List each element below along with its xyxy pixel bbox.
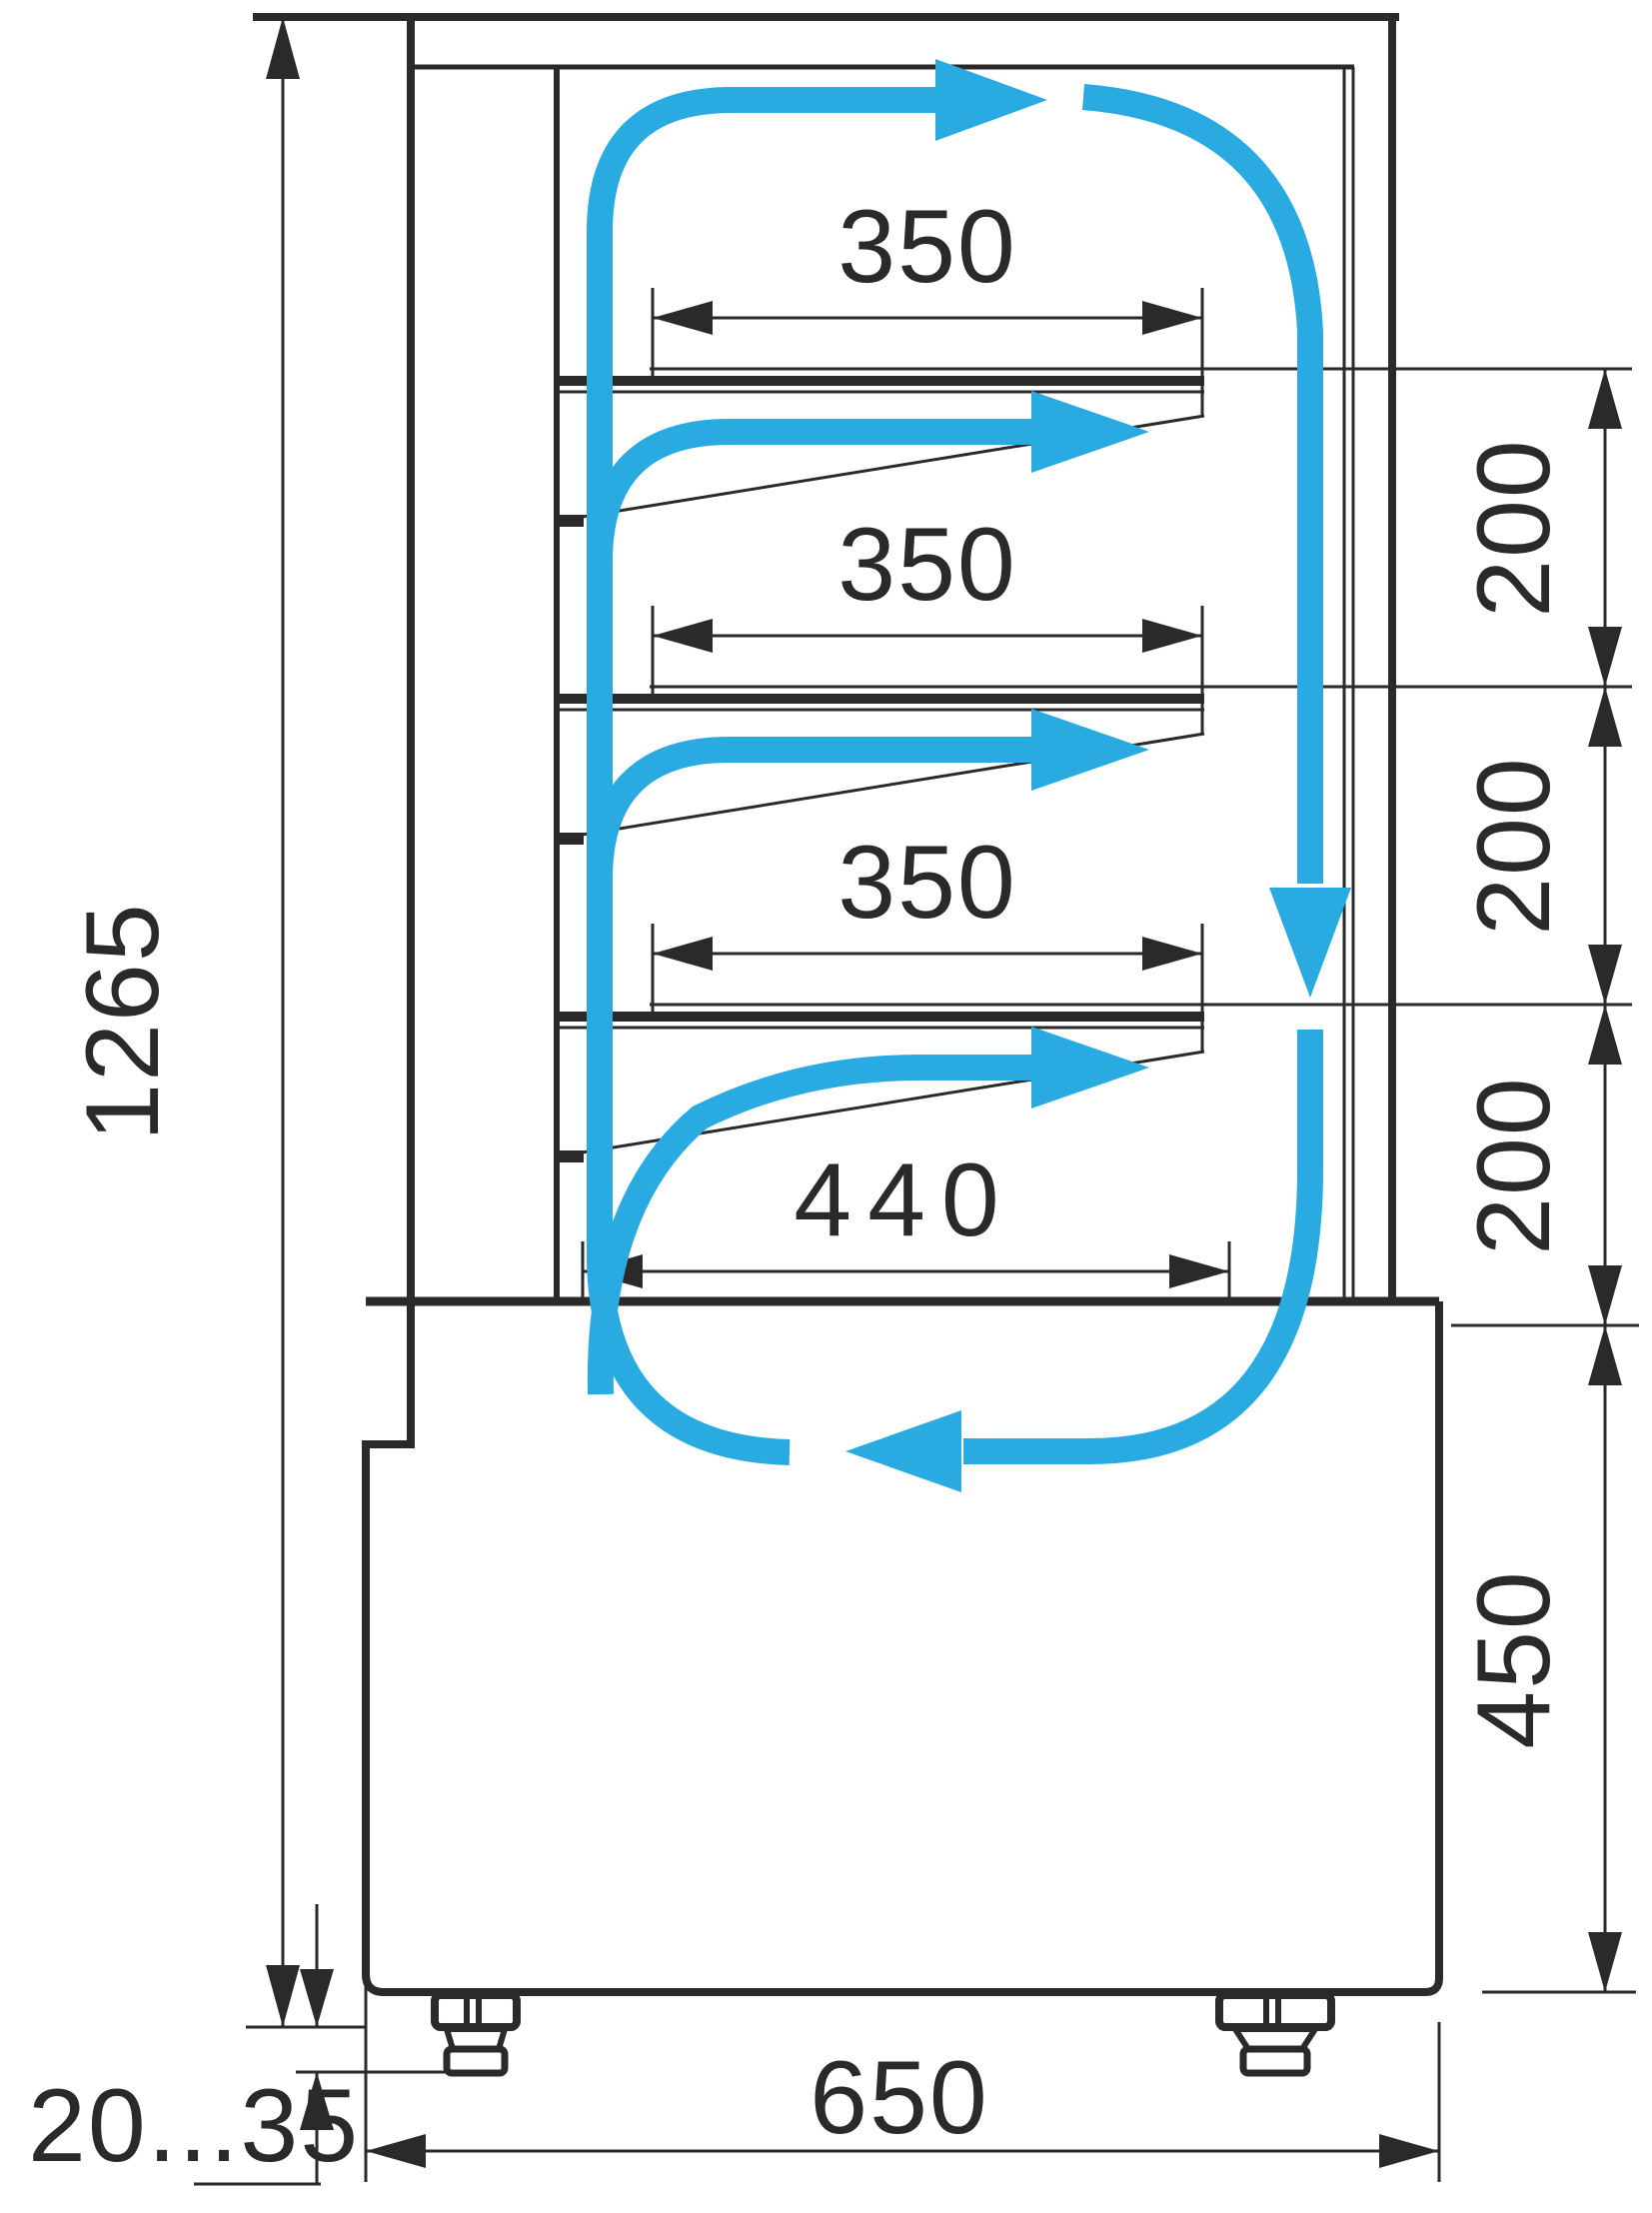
arrow-left	[653, 619, 713, 653]
dim-350-label-1: 350	[837, 189, 1017, 305]
cabinet-structure	[253, 13, 1439, 2073]
airflow-arrow-shelf-3-icon	[1031, 1027, 1149, 1108]
airflow-arrow-down-icon	[1269, 888, 1351, 998]
left-foot	[435, 1995, 517, 2073]
arrow-down-1993	[1588, 1932, 1622, 1992]
arrow-down-687	[1588, 627, 1622, 687]
dim-350-label-3: 350	[837, 825, 1017, 941]
shelf-3	[556, 1017, 1204, 1162]
display-case-diagram: 1265 350 350 350	[0, 0, 1652, 2213]
dim-350-label-2: 350	[837, 507, 1017, 623]
dim-20-35-label: 20...35	[28, 2068, 360, 2184]
dim-200-label-1: 200	[1456, 438, 1572, 618]
base-outline	[366, 1301, 1439, 1992]
drawing-page: 1265 350 350 350	[0, 0, 1652, 2213]
airflow-right-descent	[1083, 97, 1310, 884]
arrow-right	[1142, 619, 1202, 653]
right-foot	[1219, 1995, 1331, 2073]
arrow-left	[653, 937, 713, 971]
left-foot-pad	[447, 2049, 505, 2073]
dim-650-label: 650	[810, 2040, 989, 2156]
dim-450-label: 450	[1456, 1569, 1572, 1749]
dim-1265-label: 1265	[65, 902, 181, 1140]
arrow-up-1005	[1588, 1005, 1622, 1065]
dim-200-label-2: 200	[1456, 756, 1572, 936]
dim-440-label: 440	[794, 1142, 1015, 1258]
arrow-left	[366, 2134, 426, 2168]
arrow-right	[1169, 1254, 1229, 1288]
dim-200-label-3: 200	[1456, 1076, 1572, 1255]
airflow-arrow-top-right-icon	[935, 59, 1047, 141]
arrow-right	[1142, 301, 1202, 335]
dim-bottom-shelf-depth: 440	[583, 1142, 1229, 1302]
arrow-up-1326	[1588, 1325, 1622, 1385]
airflow-arrow-shelf-1-icon	[1031, 391, 1149, 473]
right-foot-pad	[1243, 2049, 1307, 2073]
arrow-down-1326	[1588, 1265, 1622, 1325]
dim-overall-height: 1265	[65, 17, 366, 2027]
airflow-bottom-return	[963, 1030, 1310, 1451]
arrow-right	[1379, 2134, 1439, 2168]
arrow-up-687	[1588, 687, 1622, 747]
dimensions: 1265 350 350 350	[28, 17, 1639, 2184]
arrow-down-1005	[1588, 945, 1622, 1005]
arrow-left	[653, 301, 713, 335]
dim-1265-arrow-up	[266, 17, 300, 79]
arrow-down	[300, 1969, 334, 2027]
airflow-arrow-left-icon	[845, 1410, 961, 1492]
airflow-arrow-shelf-2-icon	[1031, 709, 1149, 791]
dim-1265-arrow-down	[266, 1965, 300, 2027]
arrow-up-369	[1588, 369, 1622, 429]
arrow-right	[1142, 937, 1202, 971]
